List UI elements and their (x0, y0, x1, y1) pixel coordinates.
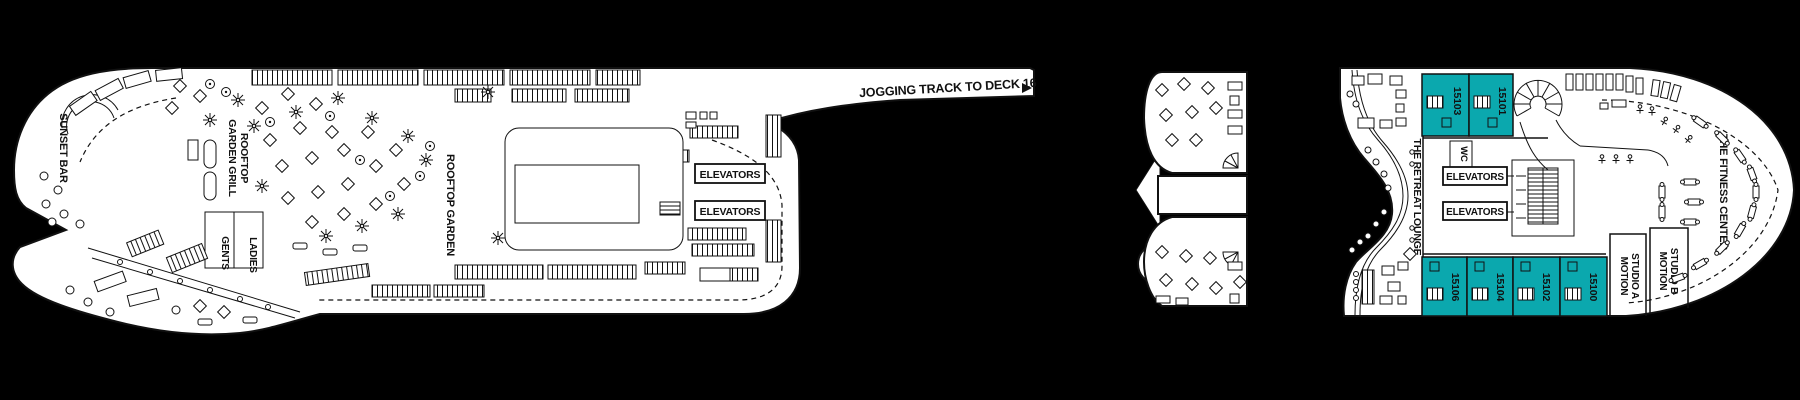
deck-plan-svg: JOGGING TRACK TO DECK 16 (0, 0, 1800, 400)
left-elevators-upper: ELEVATORS (695, 164, 765, 183)
gents-label: GENTS (219, 236, 230, 270)
sunset-bar-label: SUNSET BAR (57, 113, 69, 183)
cabin-15101-number: 15101 (1496, 87, 1508, 116)
right-elevators-lower: ELEVATORS (1443, 202, 1507, 220)
cabin-15102-number: 15102 (1540, 273, 1552, 302)
deck-plan-page: JOGGING TRACK TO DECK 16 (0, 0, 1800, 400)
middle-bridge-structure (1158, 176, 1247, 214)
motion-studio-b-label-line1: MOTION (1657, 252, 1668, 291)
retreat-middle-section (1136, 72, 1247, 306)
cabin-15100[interactable]: 15100 (1560, 257, 1607, 316)
left-elevators-lower-label: ELEVATORS (700, 206, 761, 218)
left-elevators-upper-label: ELEVATORS (700, 169, 761, 181)
cabin-15104-number: 15104 (1494, 273, 1506, 302)
cabin-15106-number: 15106 (1449, 273, 1461, 302)
wc-label: WC (1458, 146, 1469, 162)
rooftop-garden-grill-label-line2: GARDEN GRILL (226, 119, 238, 197)
right-elevators-lower-label: ELEVATORS (1446, 207, 1504, 218)
rooftop-garden-label: ROOFTOP GARDEN (444, 154, 456, 256)
right-elevators-upper: ELEVATORS (1443, 167, 1507, 185)
ladies-label: LADIES (247, 237, 258, 273)
cabin-15103[interactable]: 15103 (1422, 74, 1469, 136)
right-elevators-upper-label: ELEVATORS (1446, 172, 1504, 183)
cabin-15103-number: 15103 (1451, 87, 1463, 116)
right-deck-section: THE RETREAT LOUNGE (1340, 68, 1794, 316)
cabin-15100-number: 15100 (1587, 273, 1599, 302)
left-elevators-lower: ELEVATORS (695, 201, 765, 220)
motion-studio-b-label-line2: STUDIO B (1668, 248, 1679, 294)
motion-studio-a-label-line1: MOTION (1618, 257, 1629, 296)
motion-studio-a-label-line2: STUDIO A (1629, 253, 1640, 299)
cabin-15104[interactable]: 15104 (1467, 257, 1513, 316)
cabin-15102[interactable]: 15102 (1513, 257, 1560, 316)
fitness-center-label: THE FITNESS CENTER (1717, 134, 1729, 250)
cabin-15106[interactable]: 15106 (1422, 257, 1467, 316)
cabin-15101[interactable]: 15101 (1469, 74, 1513, 136)
rooftop-garden-grill-label-line1: ROOFTOP (238, 133, 250, 184)
